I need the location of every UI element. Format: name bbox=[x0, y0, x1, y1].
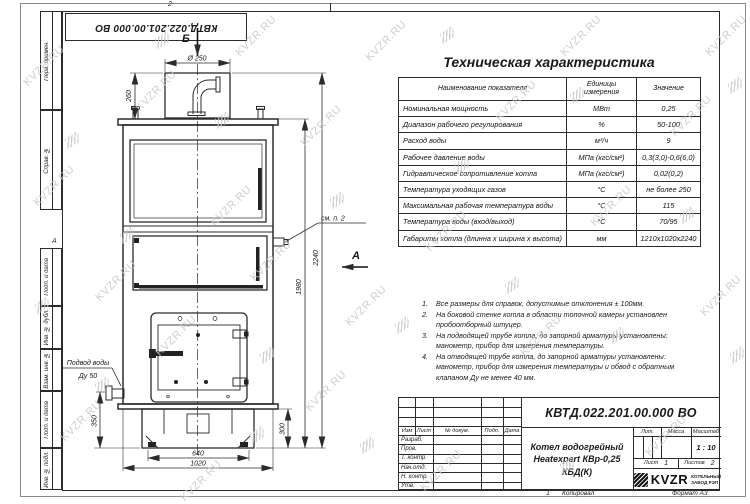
elbow-base bbox=[188, 112, 205, 116]
zone-mark-top: 2 bbox=[168, 1, 172, 8]
product-name-line2: Heatexpert КВр-0,25 КБД(К) bbox=[521, 453, 633, 477]
elbow-outer bbox=[193, 80, 216, 114]
dim-label-260: 260 bbox=[126, 90, 133, 103]
door-bolt bbox=[167, 395, 170, 398]
spec-cell: 115 bbox=[637, 198, 701, 214]
door-bolt bbox=[196, 333, 200, 337]
margin-box-podp-data-2: Подп. и дата bbox=[40, 391, 62, 448]
lifting-lug bbox=[258, 109, 263, 119]
dim-label-640: 640 bbox=[192, 451, 204, 458]
title-block-line bbox=[643, 436, 644, 458]
margin-box-label-cell: Подп. и дата bbox=[41, 392, 53, 447]
margin-box-label-cell: Подп. и дата bbox=[41, 249, 53, 305]
door-bolt bbox=[213, 317, 217, 321]
margin-box-label-cell: Инв. № дубл. bbox=[41, 307, 53, 348]
door-bolt bbox=[178, 317, 182, 321]
table-row: Температура уходящих газов°Сне более 250 bbox=[399, 181, 701, 197]
spec-cell: не более 250 bbox=[637, 181, 701, 197]
margin-box-vzam-inv: Взам. инв. № bbox=[40, 349, 62, 391]
table-row: Габариты котла (длинна х ширина х высота… bbox=[399, 230, 701, 246]
table-row: Максимальная рабочая температура воды°С1… bbox=[399, 198, 701, 214]
water-inlet-leader bbox=[112, 368, 121, 386]
dim-label-1020: 1020 bbox=[190, 461, 206, 468]
table-row: Гидравлическое сопротивление котлаМПа (к… bbox=[399, 165, 701, 181]
margin-label: Справ. № bbox=[44, 147, 50, 174]
table-row: Рабочее давление водыМПа (кгс/см²)0,3(3,… bbox=[399, 149, 701, 165]
furnace-door-hinge-pin bbox=[244, 332, 249, 337]
spec-cell: Температура воды (вход/выход) bbox=[399, 214, 567, 230]
sig-row-tkontr: Т. контр. bbox=[401, 455, 432, 461]
margin-label: Подп. и дата bbox=[44, 258, 50, 296]
middle-door-hinge bbox=[134, 283, 139, 288]
lit-header: Лит. bbox=[634, 428, 661, 436]
spec-cell: 50-100 bbox=[637, 117, 701, 133]
water-inlet-flange bbox=[106, 386, 112, 400]
view-a-label: А bbox=[351, 250, 360, 262]
sheets-value: 2 bbox=[711, 460, 715, 467]
margin-box-podp-data-1: Подп. и дата bbox=[40, 248, 62, 306]
margin-label: Подп. и дата bbox=[44, 401, 50, 439]
company-logo-cell: KVZR КОТЕЛЬНЫЙ ЗАВОД РЭП bbox=[634, 468, 721, 491]
upper-door-inner bbox=[134, 144, 262, 218]
rev-header-podp: Подп. bbox=[481, 426, 503, 435]
mass-header: Масса bbox=[661, 428, 691, 436]
rev-header-izm: Изм bbox=[399, 426, 415, 435]
water-inlet-pipe bbox=[112, 389, 124, 398]
spec-table: Наименование показателя Единицы измерени… bbox=[398, 77, 701, 247]
zone-mark-bottom: 1 bbox=[546, 490, 550, 497]
sheets-label: Листов bbox=[684, 460, 704, 466]
note-ref-leader bbox=[285, 223, 366, 242]
spec-cell: °С bbox=[567, 198, 637, 214]
spec-cell: м³/ч bbox=[567, 133, 637, 149]
spec-cell: Номинальная мощность bbox=[399, 101, 567, 117]
table-row: Номинальная мощностьМВт0,25 bbox=[399, 101, 701, 117]
lifting-lug-cap bbox=[257, 107, 265, 110]
dim-label-diameter: Ø 250 bbox=[186, 56, 206, 63]
lifting-lug bbox=[133, 109, 138, 119]
lifting-lug-cap bbox=[132, 107, 140, 110]
spec-header-row: Наименование показателя Единицы измерени… bbox=[399, 78, 701, 101]
base-lip bbox=[118, 404, 278, 409]
upper-door-handle bbox=[258, 168, 262, 210]
note-item: Все размеры для справок, допустимые откл… bbox=[420, 299, 705, 309]
margin-box-label-cell: Справ. № bbox=[41, 111, 53, 209]
scale-header: Масштаб bbox=[691, 428, 721, 436]
dim-label-300: 300 bbox=[280, 423, 287, 435]
kvzr-logo-subtitle: КОТЕЛЬНЫЙ ЗАВОД РЭП bbox=[691, 474, 721, 485]
title-block-line bbox=[399, 417, 521, 418]
spec-cell: 0,02(0,2) bbox=[637, 165, 701, 181]
sig-row-prov: Пров. bbox=[401, 446, 432, 452]
notes-list: Все размеры для справок, допустимые откл… bbox=[420, 299, 705, 384]
margin-box-inv-dubl: Инв. № дубл. bbox=[40, 306, 62, 349]
furnace-door-latch-knob bbox=[149, 349, 156, 358]
middle-door-handle bbox=[256, 247, 260, 281]
middle-door-sill bbox=[139, 285, 263, 289]
note-ref-label: см. п. 2 bbox=[321, 216, 345, 223]
spec-cell: Габариты котла (длинна х ширина х высота… bbox=[399, 230, 567, 246]
door-bolt bbox=[174, 380, 178, 384]
zone-tick-top bbox=[330, 3, 331, 11]
table-row: Температура воды (вход/выход)°С70/95 bbox=[399, 214, 701, 230]
sampling-fitting bbox=[273, 238, 284, 246]
door-bolt bbox=[204, 380, 208, 384]
margin-box-perv-primen: Перв. примен. bbox=[40, 11, 62, 110]
spec-cell: Рабочее давление воды bbox=[399, 149, 567, 165]
rev-header-data: Дата bbox=[503, 426, 521, 435]
kvzr-logo-text: KVZR bbox=[651, 472, 688, 487]
rev-header-list: Лист bbox=[415, 426, 433, 435]
spec-cell: Максимальная рабочая температура воды bbox=[399, 198, 567, 214]
spec-cell: мм bbox=[567, 230, 637, 246]
format-label: Формат А3 bbox=[672, 490, 708, 497]
rev-header-docnum: № докум. bbox=[433, 426, 481, 435]
spec-cell: 9 bbox=[637, 133, 701, 149]
upper-door bbox=[130, 140, 266, 222]
spec-header: Значение bbox=[637, 78, 701, 101]
furnace-door bbox=[151, 313, 247, 402]
spec-cell: МПа (кгс/см²) bbox=[567, 149, 637, 165]
note-item: На отводящей трубе котла, до запорной ар… bbox=[420, 352, 705, 382]
margin-box-inv-podl: Инв. № подл. bbox=[40, 448, 62, 490]
margin-label: Перв. примен. bbox=[44, 41, 50, 81]
spec-cell: 1210х1020х2240 bbox=[637, 230, 701, 246]
spec-cell: Расход воды bbox=[399, 133, 567, 149]
note-item: На боковой стенке котла в области топочн… bbox=[420, 310, 705, 330]
water-inlet-size-label: Ду 50 bbox=[78, 373, 97, 380]
top-plate bbox=[118, 119, 278, 125]
scale-value: 1 : 10 bbox=[691, 436, 721, 458]
spec-cell: 0,25 bbox=[637, 101, 701, 117]
spec-cell: Температура уходящих газов bbox=[399, 181, 567, 197]
product-name-cell: Котел водогрейный Heatexpert КВр-0,25 КБ… bbox=[521, 428, 634, 491]
margin-box-sprav-no: Справ. № bbox=[40, 110, 62, 210]
spec-table-title: Техническая характеристика bbox=[398, 54, 700, 70]
door-bolt bbox=[227, 395, 230, 398]
furnace-door-hinge-pin bbox=[244, 380, 249, 385]
spec-cell: 70/95 bbox=[637, 214, 701, 230]
margin-box-label-cell: Перв. примен. bbox=[41, 12, 53, 109]
title-block: Изм Лист № докум. Подп. Дата Разраб. Про… bbox=[398, 397, 720, 490]
sheet-cell: Лист 1 bbox=[634, 458, 678, 468]
drawing-sheet: 2 А 1 Перв. примен. Справ. № Подп. и дат… bbox=[0, 0, 750, 500]
zone-mark-left: А bbox=[52, 238, 57, 245]
spec-cell: МПа (кгс/см²) bbox=[567, 165, 637, 181]
spec-cell: °С bbox=[567, 181, 637, 197]
kvzr-logo-icon bbox=[634, 473, 648, 487]
spec-header: Наименование показателя bbox=[399, 78, 567, 101]
margin-box-label-cell: Взам. инв. № bbox=[41, 350, 53, 390]
table-row: Расход водым³/ч9 bbox=[399, 133, 701, 149]
margin-label: Взам. инв. № bbox=[44, 352, 50, 389]
sig-row-nachotd: Нач.отд. bbox=[401, 465, 432, 471]
dim-label-2240: 2240 bbox=[313, 250, 320, 267]
boiler-body bbox=[123, 125, 273, 404]
note-item: На подводящей трубе котла, до запорной а… bbox=[420, 331, 705, 351]
table-row: Диапазон рабочего регулирования%50-100 bbox=[399, 117, 701, 133]
dim-label-350: 350 bbox=[92, 415, 99, 427]
title-block-line bbox=[652, 436, 653, 458]
dim-label-1980: 1980 bbox=[296, 279, 303, 295]
middle-door-hinge bbox=[134, 238, 139, 243]
blower-opening bbox=[187, 414, 209, 433]
water-inlet-label: Подвод воды bbox=[67, 359, 110, 367]
elbow-inner bbox=[201, 89, 216, 114]
spec-header: Единицы измерения bbox=[567, 78, 637, 101]
sig-row-razrab: Разраб. bbox=[401, 437, 432, 443]
sheets-cell: Листов 2 bbox=[678, 458, 721, 468]
spec-cell: 0,3(3,0)-0,6(6,0) bbox=[637, 149, 701, 165]
boiler-drawing: Б Ø 250 260 bbox=[62, 12, 395, 490]
sheet-value: 1 bbox=[664, 460, 668, 467]
copied-by-label: Копировал bbox=[562, 490, 594, 497]
view-b-label: Б bbox=[182, 33, 190, 45]
margin-label: Инв. № дубл. bbox=[44, 309, 50, 345]
base bbox=[142, 409, 254, 448]
middle-door bbox=[133, 236, 267, 290]
kvzr-logo-subtitle-line2: ЗАВОД РЭП bbox=[691, 480, 721, 486]
spec-cell: Диапазон рабочего регулирования bbox=[399, 117, 567, 133]
sig-row-nkontr: Н. контр. bbox=[401, 474, 432, 480]
spec-cell: °С bbox=[567, 214, 637, 230]
product-name-line1: Котел водогрейный bbox=[531, 441, 624, 453]
margin-box-label-cell: Инв. № подл. bbox=[41, 449, 53, 489]
furnace-door-latch bbox=[153, 351, 183, 356]
spec-cell: % bbox=[567, 117, 637, 133]
margin-label: Инв. № подл. bbox=[44, 451, 50, 488]
designation-cell: КВТД.022.201.00.000 ВО bbox=[521, 398, 721, 428]
elbow-flange bbox=[216, 77, 220, 92]
sig-row-utv: Утв. bbox=[401, 483, 432, 489]
sheet-label: Лист bbox=[644, 460, 658, 466]
spec-cell: МВт bbox=[567, 101, 637, 117]
spec-cell: Гидравлическое сопротивление котла bbox=[399, 165, 567, 181]
title-block-line bbox=[399, 407, 521, 408]
